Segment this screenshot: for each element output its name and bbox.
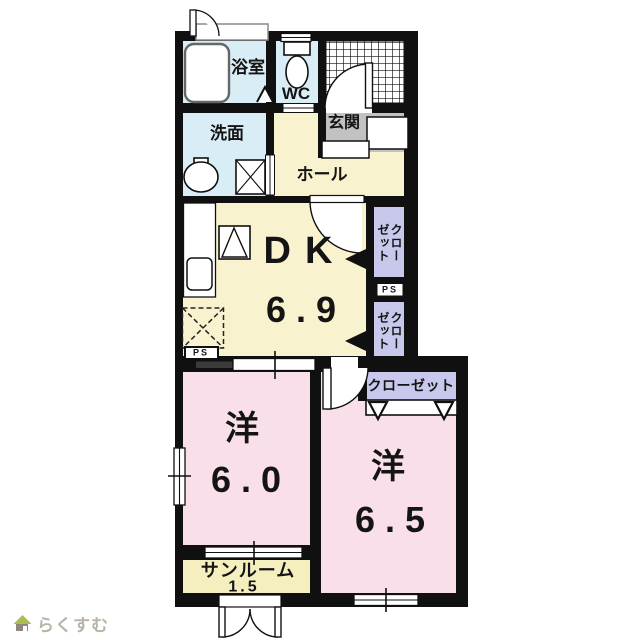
ps-label-left: PS: [193, 348, 209, 357]
washing-machine-space: [236, 160, 265, 194]
bedroom2-size: 6.5: [355, 501, 435, 539]
bedroom1-label: 洋: [225, 412, 265, 448]
washroom-label: 洗面: [210, 125, 244, 143]
sunroom-french-doors: [219, 595, 281, 637]
sunroom-size: 1.5: [228, 580, 259, 597]
kitchen-counter: [184, 203, 216, 297]
closet-lower-label: ゼット クロー: [376, 312, 402, 351]
rakusumu-logo-icon: [13, 614, 32, 633]
water-heater-box: [196, 24, 268, 40]
rakusumu-logo-text: らくすむ: [37, 611, 109, 636]
wc-window: [281, 34, 311, 42]
refrigerator-space: [219, 226, 250, 259]
toilet: [284, 42, 310, 88]
shoe-cabinet: [367, 117, 408, 149]
washroom-door: [266, 155, 275, 195]
bedroom2-closet-label: クローゼット: [368, 379, 455, 394]
closet-upper-label: ゼット クロー: [376, 224, 402, 263]
dk-label: DK: [264, 232, 347, 272]
entrance-step: [322, 141, 369, 158]
bathroom-label: 浴室: [231, 59, 265, 77]
floor-plan: 浴室 WC 洗面 ホール 玄関 DK 6.9 ゼット クロー ゼット クロー P…: [0, 0, 640, 640]
bedroom1-floor: [183, 371, 310, 545]
entrance-label: 玄関: [328, 116, 360, 133]
wc-door: [283, 104, 314, 113]
dk-size: 6.9: [266, 291, 346, 329]
bedroom2-label: 洋: [371, 450, 411, 486]
kitchen-sink: [187, 258, 212, 290]
rakusumu-logo: らくすむ: [13, 611, 109, 636]
hall-label: ホール: [297, 166, 348, 184]
bedroom1-size: 6.0: [211, 461, 291, 499]
bathtub: [185, 44, 229, 102]
ps-label-right: PS: [382, 285, 398, 294]
wc-label: WC: [282, 85, 310, 103]
